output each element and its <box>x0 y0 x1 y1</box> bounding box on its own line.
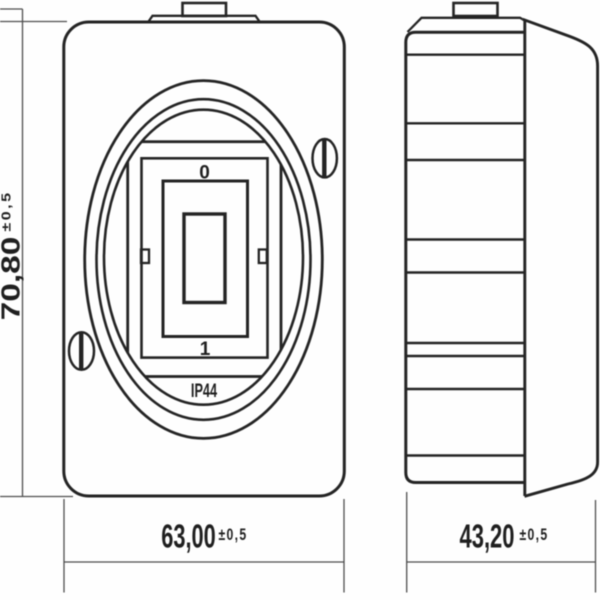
svg-text:1: 1 <box>200 339 211 360</box>
svg-text:±0,5: ±0,5 <box>520 526 549 544</box>
svg-text:0: 0 <box>199 163 210 184</box>
svg-text:63,00: 63,00 <box>161 518 215 555</box>
svg-text:70,80: 70,80 <box>0 237 26 321</box>
svg-text:43,20: 43,20 <box>460 518 515 555</box>
svg-text:±0,5: ±0,5 <box>219 526 248 544</box>
svg-text:IP44: IP44 <box>191 380 217 401</box>
svg-text:±0,5: ±0,5 <box>0 191 14 232</box>
